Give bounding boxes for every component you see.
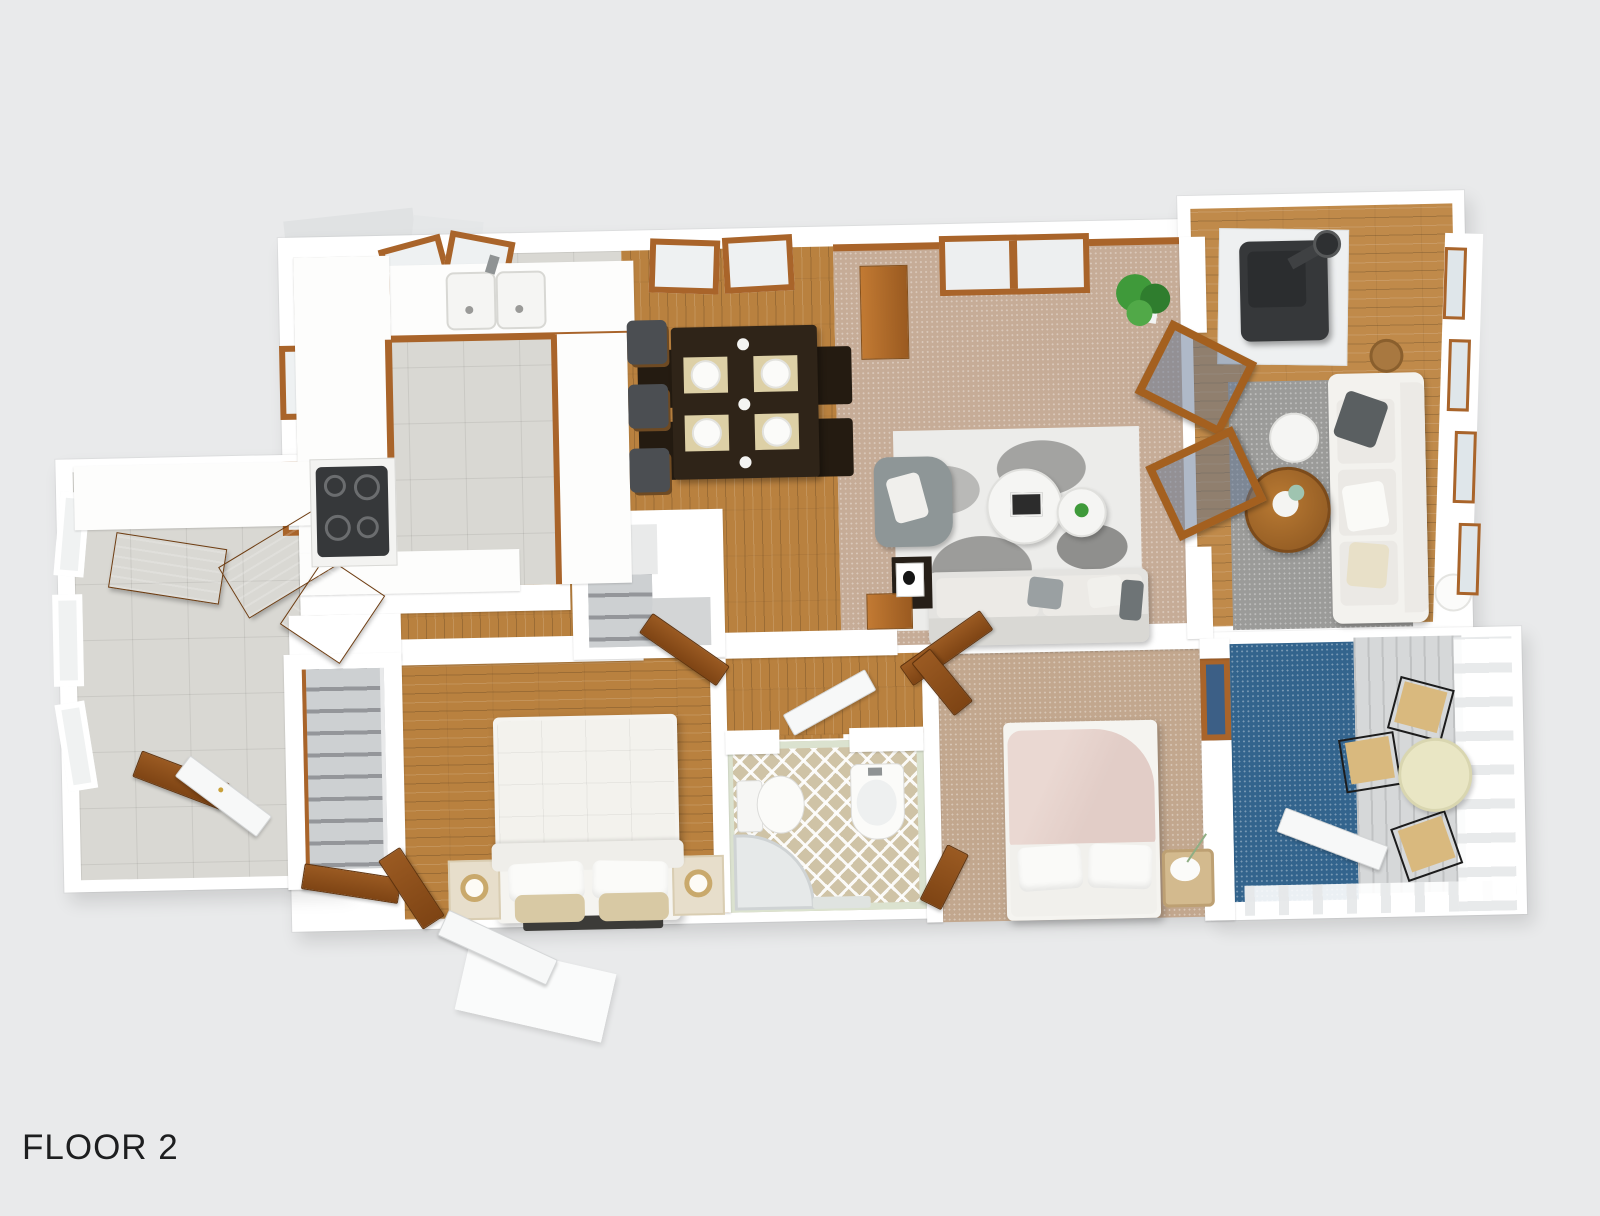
kitchen-sink — [445, 271, 496, 330]
porch-chair — [1345, 736, 1395, 784]
den-sofa-back — [1400, 382, 1429, 612]
den-pillow-knit — [1346, 542, 1390, 589]
bed1-pillow-tan — [515, 894, 586, 923]
entry-bay-window — [52, 594, 84, 687]
bar-stool — [629, 448, 670, 493]
den-window-pane — [1447, 339, 1471, 412]
dining-window — [649, 238, 721, 294]
wall-living-den — [1185, 547, 1213, 640]
sink-faucet — [868, 767, 882, 775]
small-staircase — [588, 574, 653, 647]
sink-drain — [465, 306, 473, 314]
den-window-pane — [1457, 523, 1481, 596]
plan-body — [0, 0, 1600, 1216]
floor-plan-3d: FLOOR 2 — [0, 0, 1600, 1200]
door-knob — [218, 787, 223, 792]
wall-living-den — [1179, 237, 1207, 334]
bed2-pillow — [1087, 844, 1152, 890]
sofa-pillow-dark — [1119, 579, 1144, 621]
bath-mat — [813, 896, 871, 909]
bed2-duvet-pink — [1007, 728, 1155, 849]
bedroom2-window — [1200, 658, 1232, 741]
coffee-table-books — [1010, 492, 1042, 517]
wall-bath-top — [849, 727, 923, 753]
den-window-pane — [1453, 431, 1477, 504]
bed1-duvet — [497, 718, 676, 850]
porch-blue-rug — [1229, 642, 1358, 903]
side-table-wood — [866, 593, 913, 630]
dining-window — [722, 234, 795, 294]
sofa-pillow-white — [1087, 575, 1124, 609]
bed1-pillow-tan — [599, 892, 670, 921]
staircase-down — [302, 668, 388, 870]
wall-bed2-porch — [1199, 638, 1229, 659]
bed2-pillow — [1017, 844, 1084, 893]
entry-console — [73, 461, 324, 530]
floor-label: FLOOR 2 — [22, 1128, 179, 1168]
bar-stool — [628, 384, 669, 429]
living-cabinet — [859, 265, 909, 360]
wall-south-rooms — [707, 629, 898, 659]
living-window-mullion — [1009, 241, 1018, 289]
kitchen-bar-counter — [555, 333, 632, 584]
bar-stool — [627, 320, 668, 365]
den-pillow-white — [1341, 480, 1390, 532]
den-window-pane — [1443, 247, 1467, 320]
wall-bath-top — [725, 730, 779, 755]
kitchen-sink — [495, 270, 546, 329]
sofa-pillow-gray — [1027, 576, 1064, 610]
sofa-cushion — [936, 576, 1039, 618]
